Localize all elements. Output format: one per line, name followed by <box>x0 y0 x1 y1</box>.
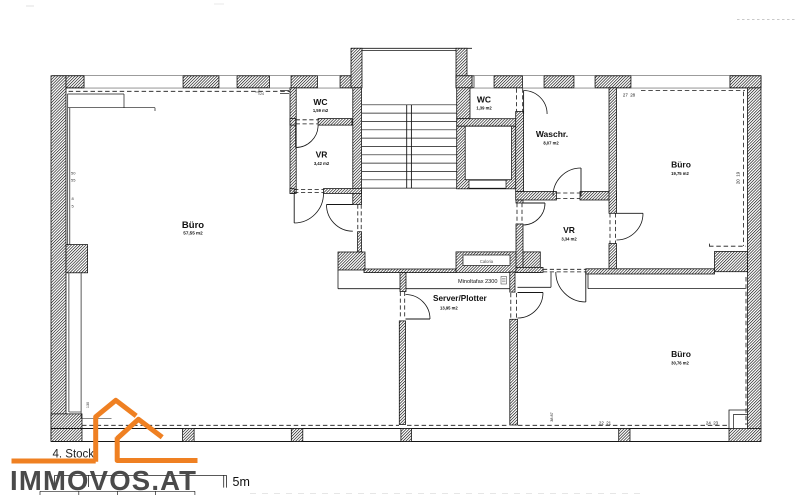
svg-text:50: 50 <box>71 171 76 176</box>
svg-text:Waschr.: Waschr. <box>536 129 568 139</box>
svg-text:Minoltafax 2300: Minoltafax 2300 <box>458 279 498 285</box>
svg-text:19,75 m2: 19,75 m2 <box>671 171 689 176</box>
svg-text:3,34 m2: 3,34 m2 <box>561 236 577 241</box>
svg-text:24 23: 24 23 <box>706 421 719 426</box>
svg-text:1,39 m2: 1,39 m2 <box>476 106 492 111</box>
svg-text:3,42 m2: 3,42 m2 <box>314 161 330 166</box>
svg-text:8,07 m2: 8,07 m2 <box>543 141 559 146</box>
svg-text:WC: WC <box>313 97 327 107</box>
svg-text:20 19: 20 19 <box>736 171 741 184</box>
svg-text:WC: WC <box>477 95 491 105</box>
svg-text:27 28: 27 28 <box>623 93 636 98</box>
svg-text:Büro: Büro <box>671 160 691 170</box>
svg-text:30,76 m2: 30,76 m2 <box>671 361 689 366</box>
svg-text:38 87: 38 87 <box>550 412 554 422</box>
svg-text:VR: VR <box>316 150 328 160</box>
svg-text:22 21: 22 21 <box>599 421 612 426</box>
svg-text:5m: 5m <box>233 475 250 489</box>
svg-text:130: 130 <box>86 402 90 408</box>
svg-text:1,59 m2: 1,59 m2 <box>313 108 329 113</box>
svg-text:13,95 m2: 13,95 m2 <box>440 306 458 311</box>
svg-text:Server/Plotter: Server/Plotter <box>433 294 488 303</box>
svg-text:55: 55 <box>71 178 76 183</box>
svg-text:IMMOVOS.AT: IMMOVOS.AT <box>10 465 197 495</box>
svg-text:24: 24 <box>260 92 264 96</box>
svg-text:Büro: Büro <box>182 220 204 231</box>
svg-text:Caloria: Caloria <box>480 259 494 264</box>
svg-text:VR: VR <box>563 225 575 235</box>
svg-text:Büro: Büro <box>671 349 691 359</box>
svg-text:57,55 m2: 57,55 m2 <box>183 231 203 236</box>
